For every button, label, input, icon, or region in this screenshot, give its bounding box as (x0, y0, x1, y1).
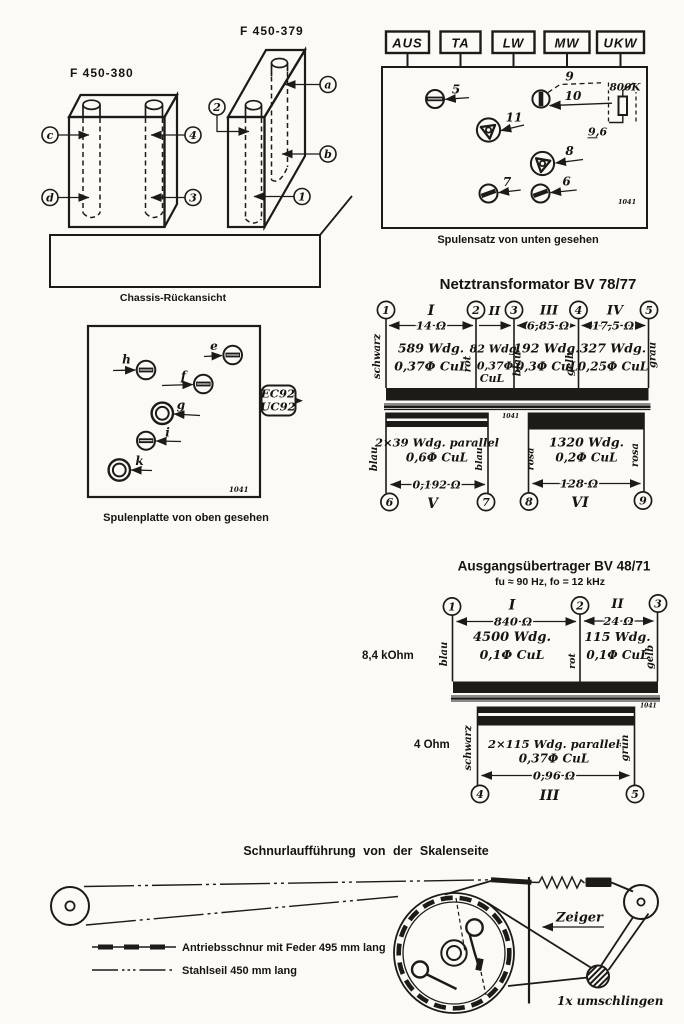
schnurlauf-title: Schnurlaufführung von der Skalenseite (243, 844, 488, 858)
trimmer-e-label: e (210, 339, 218, 353)
wrap-note: 1x umschlingen (557, 994, 663, 1008)
wire-color-schwarz: schwarz (463, 725, 474, 770)
callout-c: c (47, 129, 54, 142)
turns-I: 589 Wdg. (398, 341, 464, 356)
resistance-dimensions: 14 Ω 6,85 Ω 17,5 Ω (389, 319, 645, 333)
resistance-III: 6,85 Ω (527, 319, 570, 333)
chassis-rear-view: F 450-380 F 450-379 (42, 24, 352, 304)
core-laminations (384, 388, 651, 410)
trimmer-5: 5 (426, 83, 469, 109)
drum-hub (441, 940, 466, 965)
winding-numeral-VI: VI (571, 495, 589, 511)
left-pulley-hole (65, 901, 74, 910)
wire-II: 0,1Φ CuL (586, 648, 648, 662)
ausgang-subtitle: fu ≈ 90 Hz, fo = 12 kHz (495, 576, 605, 588)
callout-4: 4 (189, 129, 197, 142)
trimmer-8-label: 8 (565, 144, 574, 158)
winding-numeral-III: III (539, 788, 560, 804)
button-ukw: UKW (603, 36, 638, 51)
winding-numeral-II: II (488, 303, 502, 318)
terminal-1: 1 (382, 304, 390, 317)
trimmer-9-10: 9 10 (532, 70, 612, 108)
cord-drum-to-top (445, 881, 493, 895)
part-number-right: F 450-379 (240, 24, 304, 38)
cord-drum-bottom-to-shaft (508, 978, 588, 987)
turns-II: 115 Wdg. (584, 629, 650, 644)
winding-numeral-II: II (610, 597, 624, 612)
right-pulley-hole (637, 898, 644, 905)
cord-shaft-to-pulley-b (609, 914, 649, 971)
coil-g: g (152, 398, 200, 424)
button-lw: LW (503, 36, 525, 51)
diagram-canvas: F 450-380 F 450-379 (0, 0, 684, 1024)
spring (539, 877, 585, 888)
turns-VI: 1320 Wdg. (549, 435, 624, 450)
winding-numeral-V: V (427, 496, 440, 512)
fm-resistor: 800K 9,6 (588, 82, 642, 139)
resistor-label: 800K (610, 82, 642, 94)
resistance-V: 0,192 Ω (412, 479, 460, 492)
impedance-secondary: 4 Ohm (414, 739, 450, 751)
wire-II-b: CuL (480, 372, 505, 385)
winding-numeral-IV: IV (606, 304, 625, 319)
terminal-3: 3 (510, 304, 518, 317)
wire-color-schwarz: schwarz (372, 334, 383, 379)
resistance-VI: 128 Ω (560, 477, 599, 491)
wire-V: 0,6Φ CuL (406, 451, 468, 465)
button-mw: MW (554, 36, 580, 51)
winding-numeral-I: I (427, 303, 435, 319)
trimmer-9-label: 9 (565, 70, 574, 84)
spulenplatte: e h f g i k (88, 326, 303, 524)
steel-cable-top (84, 880, 491, 887)
part-number-left: F 450-380 (70, 66, 134, 80)
wire-color-grau: grau (648, 342, 659, 368)
cord-anchor-clip-lower (412, 962, 428, 978)
right-pulley (624, 885, 658, 919)
wire-color-gruen: grün (620, 735, 631, 762)
impedance-primary: 8,4 kOhm (362, 650, 414, 662)
callout-2: 2 (212, 101, 221, 114)
left-pulley (51, 887, 89, 925)
terminal-9: 9 (639, 495, 647, 508)
ausgangsuebertrager: Ausgangsübertrager BV 48/71 fu ≈ 90 Hz, … (362, 559, 667, 805)
terminal-8: 8 (525, 496, 533, 509)
trimmer-5-label: 5 (452, 83, 460, 97)
callout-d: d (46, 191, 54, 204)
trimmer-7-label: 7 (503, 175, 512, 189)
resistance-II: 24 Ω (602, 614, 634, 628)
wire-color-blau: blau (513, 352, 524, 377)
legend: Antriebsschnur mit Feder 495 mm lang Sta… (92, 942, 386, 977)
button-aus: AUS (391, 36, 422, 51)
trimmer-11: 11 (477, 111, 524, 142)
trimmer-11-label: 11 (506, 111, 523, 125)
terminal-7: 7 (482, 496, 490, 509)
trimmer-e: e (204, 339, 242, 364)
tube-tag: EC92 UC92 (260, 386, 303, 416)
schnurlauf: Schnurlaufführung von der Skalenseite (51, 844, 663, 1013)
winding-VI: 1320 Wdg. 0,2Φ CuL 128 Ω rosa rosa 8 9 V… (520, 413, 651, 512)
wire-color-blau-left: blau (369, 447, 380, 472)
trimmer-10-label: 10 (565, 89, 582, 103)
terminal-4: 4 (476, 788, 484, 801)
spulensatz-panel: AUS TA LW MW UKW 5 9 (382, 32, 647, 247)
coil-box-right (228, 50, 305, 227)
resistance-III: 0,96 Ω (533, 769, 576, 783)
print-stamp: 1041 (618, 198, 636, 206)
ausgang-title: Ausgangsübertrager BV 48/71 (458, 559, 651, 574)
winding-numeral-I: I (508, 598, 516, 614)
trimmer-f: f (162, 369, 213, 393)
winding-V: 2×39 Wdg. parallel 0,6Φ CuL 0,192 Ω blau… (369, 413, 500, 513)
netztrafo-title: Netztransformator BV 78/77 (440, 276, 637, 293)
print-stamp: 1041 (229, 485, 248, 494)
wire-color-rot: rot (463, 355, 474, 372)
wire-III: 0,37Φ CuL (519, 752, 590, 766)
wire-II-a: 0,37Φ (477, 360, 514, 373)
cord-anchor-clip-upper (466, 919, 482, 935)
callout-3: 3 (189, 191, 197, 204)
tuning-shaft-pulley (587, 966, 609, 988)
chassis-strip (50, 235, 320, 287)
hidden-core-outline (246, 72, 288, 223)
coil-k-label: k (135, 454, 143, 468)
coil-g-label: g (177, 398, 185, 412)
wire-color-rosa-left: rosa (526, 448, 537, 471)
terminal-1: 1 (448, 601, 456, 614)
wire-VI: 0,2Φ CuL (555, 451, 617, 465)
dial-drum (394, 893, 514, 1013)
tube-name-1: EC92 (260, 387, 295, 401)
netztrafo: Netztransformator BV 78/77 1 2 3 4 5 I I… (369, 276, 659, 512)
trimmer-7: 7 (480, 175, 521, 203)
service-manual-page: F 450-380 F 450-379 (0, 0, 684, 1024)
resistor-value: 9,6 (588, 126, 607, 139)
winding-numeral-III: III (539, 304, 559, 319)
pointer-label: Zeiger (555, 911, 604, 926)
spulensatz-caption: Spulensatz von unten gesehen (437, 234, 599, 246)
legend-cable-label: Stahlseil 450 mm lang (182, 965, 297, 977)
wire-color-gelb: gelb (565, 352, 576, 376)
terminal-5: 5 (631, 788, 639, 801)
wire-color-rot: rot (567, 653, 578, 669)
cord-clamp (586, 878, 612, 888)
terminal-5: 5 (645, 304, 653, 317)
tube-name-2: UC92 (260, 400, 295, 414)
trimmer-i-label: i (165, 426, 170, 440)
terminal-2: 2 (471, 304, 480, 317)
terminal-6: 6 (386, 496, 394, 509)
coil-box-left (69, 95, 177, 227)
callout-b: b (324, 148, 332, 161)
terminal-4: 4 (575, 304, 583, 317)
spulenplatte-caption: Spulenplatte von oben gesehen (103, 512, 269, 524)
legend-cord-label: Antriebsschnur mit Feder 495 mm lang (182, 942, 386, 954)
hidden-core-outline (83, 118, 163, 218)
turns-I: 4500 Wdg. (473, 630, 551, 645)
wire-IV: 0,25Φ CuL (578, 360, 649, 374)
resistance-IV: 17,5 Ω (592, 319, 635, 333)
turns-IV: 327 Wdg. (580, 341, 646, 356)
band-buttons: AUS TA LW MW UKW (386, 32, 644, 68)
wire-color-blau-right: blau (474, 447, 485, 470)
drive-cord-segment (491, 880, 532, 883)
steel-cable-lower (86, 897, 398, 926)
trimmer-h-label: h (122, 353, 131, 367)
resistance-I: 14 Ω (416, 319, 447, 333)
trimmer-h: h (113, 353, 155, 380)
trimmer-f-label: f (180, 369, 188, 383)
chassis-edge-line (320, 196, 352, 235)
wire-I: 0,1Φ CuL (480, 647, 545, 662)
wire-I: 0,37Φ CuL (394, 359, 468, 374)
terminal-2: 2 (575, 600, 584, 613)
button-ta: TA (451, 36, 469, 51)
terminal-3: 3 (654, 598, 662, 611)
resistance-I: 840 Ω (494, 615, 533, 629)
wire-color-rosa-right: rosa (630, 443, 641, 467)
coil-k: k (109, 454, 152, 481)
chassis-caption: Chassis-Rückansicht (120, 292, 227, 304)
print-stamp: 1041 (502, 413, 519, 420)
turns-III: 2×115 Wdg. parallel (487, 737, 621, 751)
wire-color-blau: blau (439, 642, 450, 667)
panel-outline (382, 67, 647, 228)
core-laminations (451, 682, 660, 702)
callout-1: 1 (298, 190, 306, 203)
trimmer-8: 8 (531, 144, 583, 175)
trimmer-i: i (137, 426, 181, 450)
print-stamp: 1041 (640, 703, 657, 710)
winding-III: 2×115 Wdg. parallel 0,37Φ CuL 0,96 Ω sch… (463, 707, 644, 805)
trimmer-6: 6 (532, 175, 577, 203)
trimmer-6-label: 6 (562, 175, 571, 189)
wire-color-gelb: gelb (645, 645, 656, 669)
callout-a: a (324, 78, 331, 91)
